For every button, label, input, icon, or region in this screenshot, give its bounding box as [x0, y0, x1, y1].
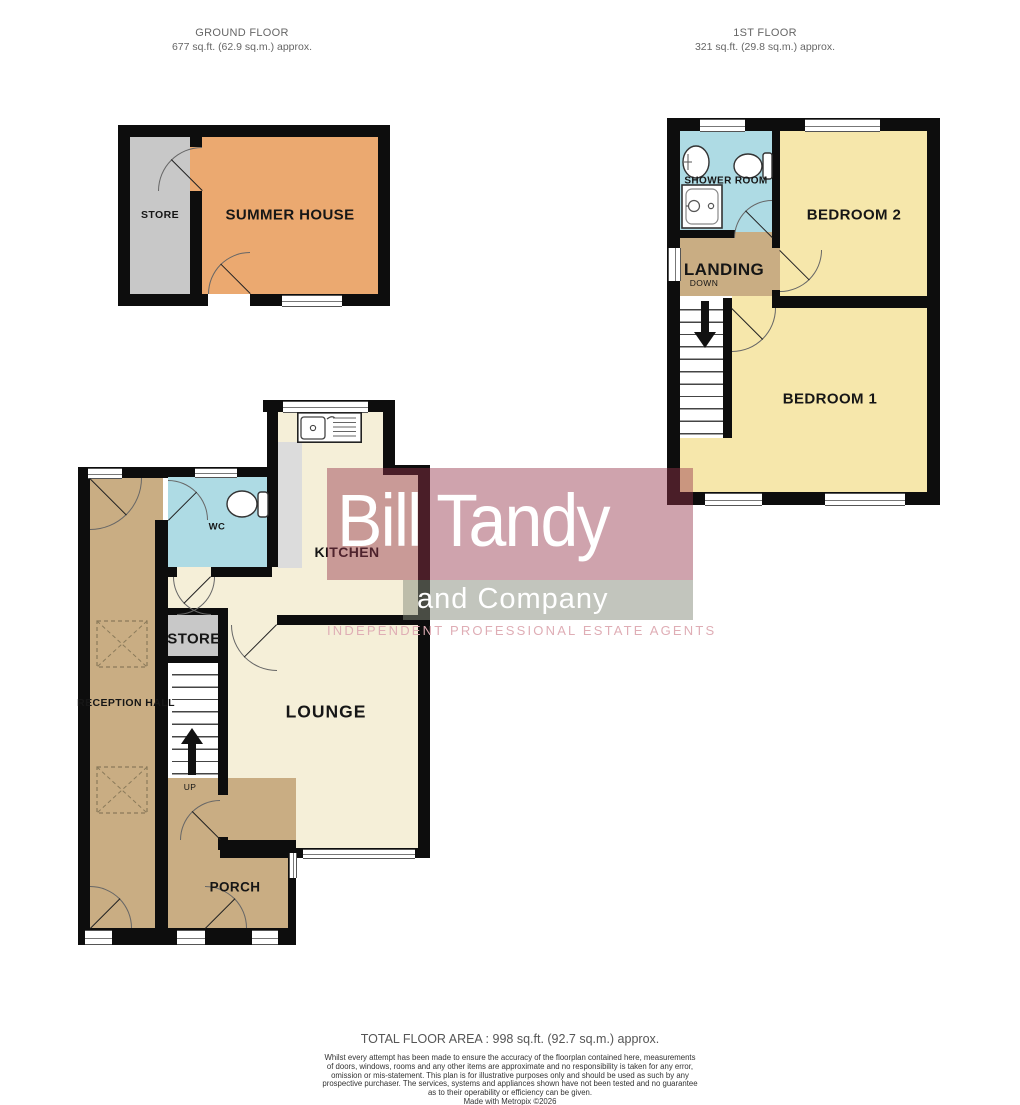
window	[303, 849, 415, 859]
wall-segment	[118, 125, 390, 137]
window	[805, 119, 880, 132]
door-opening	[208, 294, 250, 306]
wall-segment	[155, 467, 168, 478]
lounge-label: LOUNGE	[286, 702, 367, 723]
up-label: UP	[184, 782, 197, 792]
ground-floor-title: GROUND FLOOR	[92, 27, 392, 39]
bedroom2-label: BEDROOM 2	[807, 207, 901, 224]
wall-segment	[118, 294, 390, 306]
up-arrow-head	[181, 728, 203, 744]
logo-name-text: Bill Tandy	[337, 484, 609, 558]
wall-segment	[118, 125, 130, 306]
first-floor-area: 321 sq.ft. (29.8 sq.m.) approx.	[615, 41, 915, 53]
wall-segment	[383, 400, 395, 470]
landing-label: LANDING	[684, 260, 764, 280]
disclaimer: Whilst every attempt has been made to en…	[0, 1054, 1020, 1105]
shower-room-label: SHOWER ROOM	[684, 176, 767, 187]
store-label: STORE	[167, 631, 220, 648]
agency-logo-watermark: Bill Tandy and Company INDEPENDENT PROFE…	[327, 468, 693, 645]
reception-hall-label: RECEPTION HALL	[77, 697, 175, 709]
logo-red-panel: Bill Tandy	[327, 468, 693, 580]
wall-segment	[218, 663, 228, 778]
kitchen-sink-icon	[297, 412, 362, 443]
wall-segment	[155, 520, 168, 945]
toilet-icon	[225, 488, 272, 520]
wall-segment	[218, 778, 228, 795]
window	[705, 493, 762, 506]
window	[282, 295, 342, 307]
first-floor-plan: SHOWER ROOM BEDROOM 2 LANDING DOWN BEDRO…	[667, 118, 940, 505]
up-arrow	[188, 744, 196, 775]
wall-segment	[190, 191, 202, 294]
summer-house-label: SUMMER HOUSE	[226, 207, 355, 224]
wall-segment	[190, 137, 202, 147]
wall-segment	[211, 567, 272, 577]
logo-gray-band: and Company	[403, 580, 693, 620]
door-opening	[772, 248, 780, 290]
wall-segment	[772, 296, 927, 308]
wall-segment	[772, 131, 780, 248]
down-label: DOWN	[690, 278, 719, 288]
hall-feature-icon	[96, 766, 148, 814]
wall-segment	[667, 118, 680, 505]
window	[195, 468, 237, 478]
credit-line: Made with Metropix ©2026	[0, 1098, 1020, 1105]
first-floor-header: 1ST FLOOR 321 sq.ft. (29.8 sq.m.) approx…	[615, 27, 915, 53]
wall-segment	[723, 298, 732, 438]
logo-tagline-text: INDEPENDENT PROFESSIONAL ESTATE AGENTS	[327, 623, 693, 638]
window	[252, 930, 278, 945]
ground-floor-area: 677 sq.ft. (62.9 sq.m.) approx.	[92, 41, 392, 53]
down-arrow-head	[694, 332, 716, 348]
hall-feature-icon	[96, 620, 148, 668]
window	[177, 930, 205, 945]
wall-segment	[163, 567, 177, 577]
total-floor-area: TOTAL FLOOR AREA : 998 sq.ft. (92.7 sq.m…	[0, 1032, 1020, 1046]
floorplan-canvas: GROUND FLOOR 677 sq.ft. (62.9 sq.m.) app…	[0, 0, 1020, 1105]
wall-segment	[378, 125, 390, 306]
kitchen-counter	[278, 442, 302, 568]
window	[825, 493, 905, 506]
window	[668, 248, 681, 281]
wall-segment	[168, 656, 228, 663]
first-floor-title: 1ST FLOOR	[615, 27, 915, 39]
wall-segment	[680, 230, 735, 238]
down-arrow	[701, 301, 709, 333]
shower-icon	[681, 184, 723, 229]
wall-segment	[927, 118, 940, 505]
window	[700, 119, 745, 132]
summer-store-label: STORE	[141, 209, 179, 221]
logo-suffix-text: and Company	[417, 583, 609, 616]
ground-floor-header: GROUND FLOOR 677 sq.ft. (62.9 sq.m.) app…	[92, 27, 392, 53]
wc-label: WC	[209, 522, 226, 533]
bedroom1-label: BEDROOM 1	[783, 391, 877, 408]
porch-label: PORCH	[210, 880, 261, 895]
window	[289, 853, 297, 878]
summer-house-plan: STORE SUMMER HOUSE	[118, 125, 390, 306]
window	[85, 930, 112, 945]
